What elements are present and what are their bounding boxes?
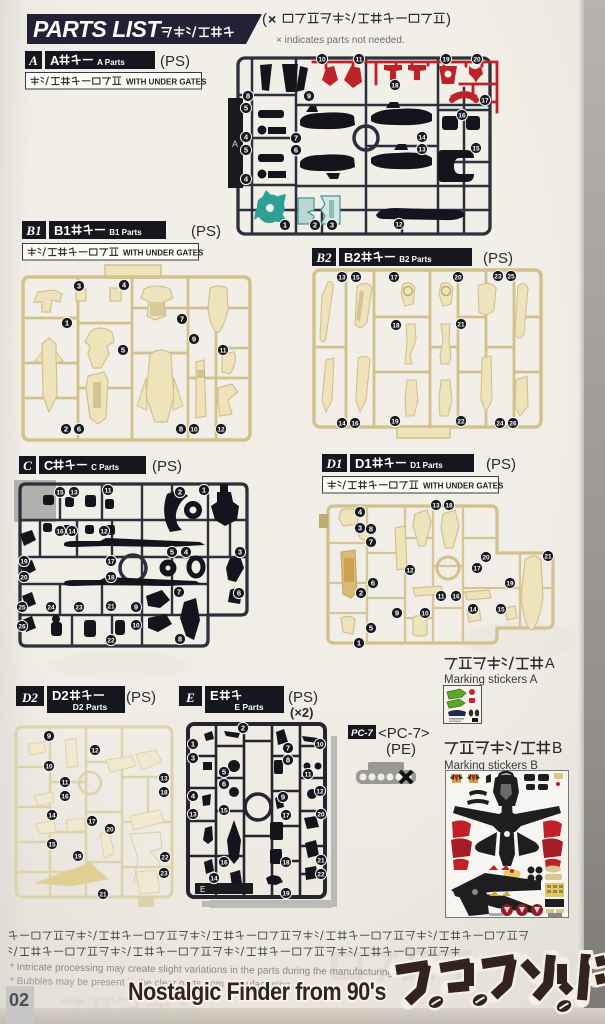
- svg-text:9: 9: [192, 335, 196, 344]
- svg-text:15: 15: [352, 274, 360, 281]
- svg-text:D2: D2: [21, 690, 38, 705]
- svg-text:A: A: [232, 139, 238, 149]
- svg-text:15: 15: [48, 841, 56, 848]
- svg-text:21: 21: [457, 321, 465, 328]
- svg-text:E Parts: E Parts: [234, 702, 264, 712]
- svg-text:D1: D1: [355, 456, 372, 471]
- svg-text:2: 2: [359, 589, 363, 598]
- svg-text:8: 8: [286, 756, 290, 765]
- svg-text:10: 10: [45, 763, 53, 770]
- svg-text:13: 13: [432, 502, 440, 509]
- svg-text:C Parts: C Parts: [91, 463, 120, 472]
- svg-text:26: 26: [18, 623, 26, 630]
- svg-text:7: 7: [180, 315, 184, 324]
- svg-text:23: 23: [160, 870, 168, 877]
- svg-text:14: 14: [68, 528, 76, 535]
- svg-text:8: 8: [178, 635, 182, 644]
- svg-text:): ): [446, 11, 451, 28]
- svg-text:13: 13: [418, 146, 426, 153]
- svg-text:15: 15: [472, 145, 480, 152]
- svg-text:18: 18: [282, 859, 290, 866]
- svg-text:15: 15: [220, 807, 228, 814]
- svg-text:8: 8: [179, 425, 183, 434]
- svg-text:10: 10: [318, 56, 326, 63]
- svg-text:21: 21: [544, 553, 552, 560]
- svg-text:2: 2: [178, 488, 182, 497]
- svg-text:9: 9: [307, 92, 311, 101]
- svg-text:B1: B1: [25, 223, 41, 238]
- svg-text:23: 23: [494, 273, 502, 280]
- svg-text:17: 17: [88, 818, 96, 825]
- svg-text:D1: D1: [326, 456, 343, 471]
- svg-text:16: 16: [351, 420, 359, 427]
- svg-text:6: 6: [77, 425, 81, 434]
- svg-text:(PS): (PS): [288, 689, 318, 706]
- svg-text:15: 15: [497, 606, 505, 613]
- svg-text:D2: D2: [52, 688, 69, 703]
- svg-text:14: 14: [210, 875, 218, 882]
- svg-text:10: 10: [132, 622, 140, 629]
- svg-text:22: 22: [107, 637, 115, 644]
- svg-text:20: 20: [473, 56, 481, 63]
- svg-text:24: 24: [496, 420, 504, 427]
- svg-text:13: 13: [189, 811, 197, 818]
- svg-text:8: 8: [369, 525, 373, 534]
- svg-text:19: 19: [20, 558, 28, 565]
- svg-text:25: 25: [18, 604, 26, 611]
- svg-text:20: 20: [317, 811, 325, 818]
- svg-text:21: 21: [107, 603, 115, 610]
- svg-text:17: 17: [473, 565, 481, 572]
- svg-text:B1 Parts: B1 Parts: [109, 228, 142, 237]
- svg-text:×: ×: [268, 11, 276, 27]
- svg-text:19: 19: [506, 580, 514, 587]
- svg-text:A: A: [28, 53, 38, 68]
- svg-text:6: 6: [222, 780, 226, 789]
- svg-text:2: 2: [313, 221, 317, 230]
- svg-text:13: 13: [338, 274, 346, 281]
- svg-text:PARTS LIST: PARTS LIST: [33, 16, 162, 42]
- svg-text:16: 16: [452, 593, 460, 600]
- svg-text:14: 14: [469, 606, 477, 613]
- svg-text:17: 17: [282, 812, 290, 819]
- svg-text:7: 7: [294, 134, 298, 143]
- svg-text:11: 11: [305, 771, 312, 778]
- svg-text:20: 20: [20, 574, 28, 581]
- svg-text:A: A: [50, 53, 60, 68]
- svg-text:12: 12: [100, 528, 108, 535]
- svg-text:25: 25: [507, 273, 515, 280]
- svg-text:14: 14: [418, 134, 426, 141]
- svg-text:3: 3: [238, 548, 242, 557]
- svg-text:8: 8: [246, 92, 250, 101]
- svg-text:12: 12: [395, 221, 403, 228]
- svg-text:12: 12: [406, 567, 414, 574]
- svg-text:3: 3: [191, 754, 195, 763]
- svg-text:(PS): (PS): [191, 223, 221, 240]
- svg-text:7: 7: [286, 744, 290, 753]
- svg-text:20: 20: [106, 826, 114, 833]
- svg-text:7: 7: [177, 588, 181, 597]
- svg-text:16: 16: [61, 793, 69, 800]
- svg-text:3: 3: [77, 282, 81, 291]
- svg-text:19: 19: [282, 890, 290, 897]
- svg-text:6: 6: [371, 579, 375, 588]
- svg-text:B: B: [552, 740, 562, 757]
- svg-text:22: 22: [161, 854, 169, 861]
- svg-text:22: 22: [457, 418, 465, 425]
- svg-text:17: 17: [390, 274, 398, 281]
- svg-text:E: E: [200, 885, 205, 894]
- svg-text:7: 7: [369, 538, 373, 547]
- svg-text:E: E: [210, 688, 219, 703]
- svg-text:16: 16: [56, 528, 64, 535]
- svg-text:3: 3: [358, 524, 362, 533]
- svg-text:B1: B1: [54, 223, 71, 238]
- svg-text:21: 21: [317, 857, 325, 864]
- svg-text:13: 13: [70, 489, 78, 496]
- svg-text:10: 10: [190, 426, 198, 433]
- svg-text:A Parts: A Parts: [97, 58, 125, 67]
- svg-text:9: 9: [281, 793, 285, 802]
- svg-text:10: 10: [316, 741, 324, 748]
- svg-text:16: 16: [458, 112, 466, 119]
- svg-text:A: A: [545, 656, 555, 672]
- svg-text:WITH UNDER GATES: WITH UNDER GATES: [126, 78, 207, 87]
- svg-text:10: 10: [421, 610, 429, 617]
- svg-text:19: 19: [391, 418, 399, 425]
- svg-text:18: 18: [160, 789, 168, 796]
- svg-text:<PC-7>: <PC-7>: [378, 725, 430, 742]
- svg-text:18: 18: [445, 502, 453, 509]
- svg-text:D2 Parts: D2 Parts: [73, 702, 108, 712]
- svg-text:18: 18: [107, 574, 115, 581]
- svg-text:(PS): (PS): [160, 53, 190, 70]
- svg-text:(: (: [262, 11, 267, 28]
- svg-text:23: 23: [75, 604, 83, 611]
- svg-text:6: 6: [294, 146, 298, 155]
- svg-text:26: 26: [509, 420, 517, 427]
- svg-text:(PS): (PS): [126, 689, 156, 706]
- svg-text:11: 11: [62, 779, 69, 786]
- svg-text:14: 14: [338, 420, 346, 427]
- svg-text:WITH UNDER GATES: WITH UNDER GATES: [123, 249, 204, 258]
- svg-text:17: 17: [481, 97, 489, 104]
- svg-text:22: 22: [317, 871, 325, 878]
- svg-text:C: C: [44, 458, 54, 473]
- svg-text:11: 11: [220, 347, 227, 354]
- svg-text:19: 19: [74, 853, 82, 860]
- svg-text:Nostalgic Finder from 90's: Nostalgic Finder from 90's: [128, 978, 386, 1006]
- svg-text:D1 Parts: D1 Parts: [410, 461, 443, 470]
- svg-text:6: 6: [237, 589, 241, 598]
- svg-text:11: 11: [105, 487, 112, 494]
- svg-text:12: 12: [91, 747, 99, 754]
- svg-text:19: 19: [442, 56, 450, 63]
- svg-text:2: 2: [241, 724, 245, 733]
- svg-text:12: 12: [316, 788, 324, 795]
- svg-text:11: 11: [356, 56, 363, 63]
- svg-text:× indicates parts not needed.: × indicates parts not needed.: [276, 35, 405, 46]
- svg-text:20: 20: [454, 274, 462, 281]
- svg-text:9: 9: [134, 603, 138, 612]
- svg-text:15: 15: [56, 489, 64, 496]
- svg-text:(PE): (PE): [386, 741, 416, 758]
- svg-text:13: 13: [160, 775, 168, 782]
- svg-text:24: 24: [47, 604, 55, 611]
- svg-text:C: C: [23, 458, 32, 473]
- svg-text:02: 02: [9, 990, 29, 1010]
- svg-text:17: 17: [107, 558, 115, 565]
- svg-text:18: 18: [392, 322, 400, 329]
- svg-text:16: 16: [220, 859, 228, 866]
- svg-text:21: 21: [99, 891, 107, 898]
- svg-text:9: 9: [47, 732, 51, 741]
- svg-text:2: 2: [64, 425, 68, 434]
- svg-text:9: 9: [395, 609, 399, 618]
- svg-text:E: E: [185, 690, 195, 705]
- svg-text:18: 18: [391, 82, 399, 89]
- svg-text:PC-7: PC-7: [351, 728, 373, 739]
- svg-text:11: 11: [438, 593, 445, 600]
- svg-text:(PS): (PS): [486, 456, 516, 473]
- svg-text:12: 12: [217, 426, 225, 433]
- svg-text:3: 3: [330, 221, 334, 230]
- svg-text:WITH UNDER GATES: WITH UNDER GATES: [423, 482, 504, 491]
- svg-text:14: 14: [48, 812, 56, 819]
- svg-text:20: 20: [482, 554, 490, 561]
